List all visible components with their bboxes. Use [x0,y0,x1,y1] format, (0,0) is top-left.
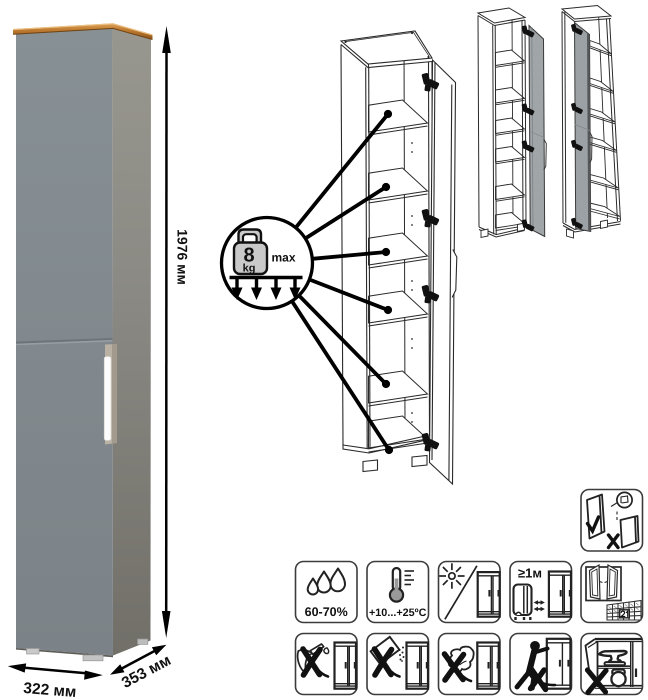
svg-text:kg: kg [243,263,256,275]
svg-text:60-70%: 60-70% [305,605,348,619]
svg-text:353 мм: 353 мм [119,652,174,692]
svg-text:+10...+25ºC: +10...+25ºC [369,607,427,619]
svg-text:max: max [272,251,296,265]
svg-text:1976 мм: 1976 мм [175,229,191,285]
svg-text:322 мм: 322 мм [23,680,77,700]
svg-text:≥1м: ≥1м [518,565,542,580]
